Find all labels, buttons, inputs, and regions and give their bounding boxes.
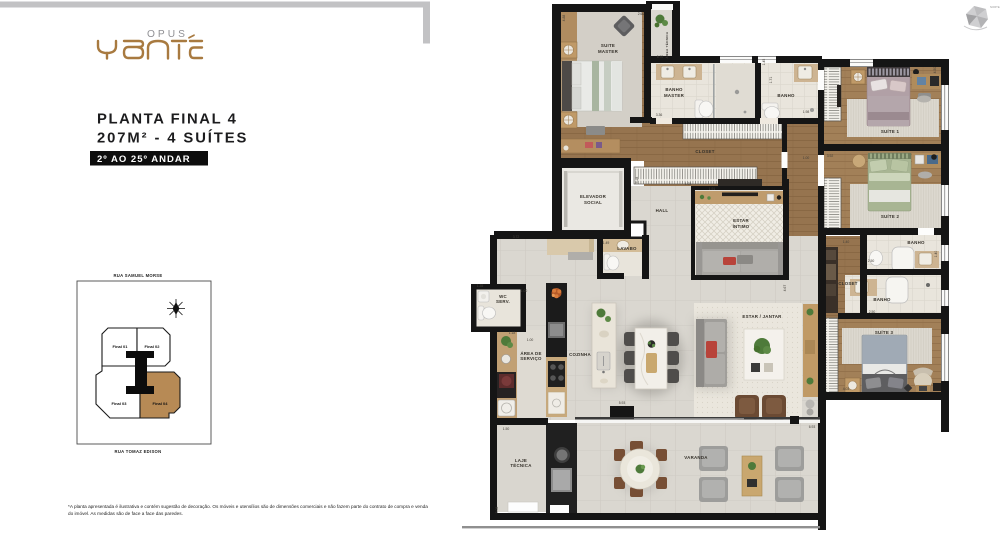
svg-text:do imóvel. As medidas são de f: do imóvel. As medidas são de face a face… [68, 511, 183, 516]
svg-text:SOCIAL: SOCIAL [584, 200, 602, 205]
svg-text:207M² - 4 SUÍTES: 207M² - 4 SUÍTES [97, 130, 248, 147]
svg-text:5.70: 5.70 [657, 55, 664, 59]
svg-text:1.40: 1.40 [843, 240, 850, 244]
svg-text:1.18: 1.18 [509, 331, 516, 335]
svg-text:1.35: 1.35 [477, 284, 484, 288]
svg-text:2.60: 2.60 [638, 12, 645, 16]
svg-text:HALL: HALL [656, 208, 669, 213]
svg-text:SUITE: SUITE [601, 43, 615, 48]
svg-text:3.92: 3.92 [827, 154, 834, 158]
svg-text:OPUS: OPUS [147, 29, 188, 40]
svg-text:Final 01: Final 01 [113, 344, 129, 349]
svg-text:LAVABO: LAVABO [617, 246, 637, 251]
svg-text:MASTER: MASTER [598, 49, 619, 54]
svg-text:ÍNTIMO: ÍNTIMO [733, 224, 750, 229]
svg-text:1.00: 1.00 [527, 338, 534, 342]
svg-text:4.03: 4.03 [843, 387, 850, 391]
svg-text:5.28: 5.28 [635, 177, 639, 184]
svg-text:NORTE: NORTE [990, 5, 1000, 9]
svg-text:Final 02: Final 02 [145, 344, 161, 349]
svg-text:ESTAR: ESTAR [733, 218, 749, 223]
svg-text:SUÍTE 1: SUÍTE 1 [881, 129, 900, 134]
svg-text:CLOSET: CLOSET [695, 149, 714, 154]
svg-text:Final 03: Final 03 [112, 401, 128, 406]
svg-text:3.08: 3.08 [495, 507, 499, 514]
svg-text:PLANTA FINAL 4: PLANTA FINAL 4 [97, 112, 238, 128]
svg-text:2.50: 2.50 [868, 259, 875, 263]
svg-text:2º AO 25º ANDAR: 2º AO 25º ANDAR [97, 154, 191, 165]
svg-text:2.50: 2.50 [869, 310, 876, 314]
svg-text:SERV.: SERV. [496, 299, 510, 304]
svg-text:3.72: 3.72 [513, 235, 520, 239]
svg-text:1.71: 1.71 [769, 77, 773, 84]
svg-text:TÉCNICA: TÉCNICA [510, 463, 532, 468]
svg-text:1.49: 1.49 [603, 241, 610, 245]
svg-text:SERVIÇO: SERVIÇO [520, 356, 542, 361]
svg-text:SUÍTE 3: SUÍTE 3 [875, 330, 894, 335]
svg-text:3.36: 3.36 [656, 113, 663, 117]
svg-text:COZINHA: COZINHA [569, 352, 591, 357]
svg-text:BANHO: BANHO [907, 240, 925, 245]
svg-text:1.91: 1.91 [709, 187, 716, 191]
svg-text:MASTER: MASTER [664, 93, 685, 98]
svg-text:1.45: 1.45 [762, 59, 766, 66]
svg-text:BANHO: BANHO [777, 93, 795, 98]
svg-text:4.88: 4.88 [562, 15, 566, 22]
svg-text:1.00: 1.00 [521, 289, 528, 293]
svg-text:Final 04: Final 04 [153, 401, 169, 406]
svg-text:1.50: 1.50 [503, 427, 510, 431]
svg-text:CLOSET: CLOSET [838, 281, 857, 286]
svg-text:5.93: 5.93 [619, 401, 626, 405]
svg-text:BANHO: BANHO [665, 87, 683, 92]
svg-text:SUÍTE 2: SUÍTE 2 [881, 214, 900, 219]
svg-text:4.67: 4.67 [783, 285, 787, 292]
svg-text:ÁREA TÉCNICA: ÁREA TÉCNICA [664, 31, 669, 58]
svg-text:*A planta apresentada é ilustr: *A planta apresentada é ilustrativa e co… [68, 504, 428, 509]
svg-text:6.93: 6.93 [809, 425, 816, 429]
svg-text:1.40: 1.40 [934, 251, 938, 258]
svg-text:ELEVADOR: ELEVADOR [580, 194, 607, 199]
svg-text:1.98: 1.98 [803, 110, 810, 114]
svg-text:1.00: 1.00 [803, 156, 810, 160]
svg-text:RUA TOMAZ EDISON: RUA TOMAZ EDISON [115, 449, 162, 454]
svg-text:VARANDA: VARANDA [684, 455, 708, 460]
svg-text:4.50: 4.50 [933, 67, 937, 74]
svg-text:BANHO: BANHO [873, 297, 891, 302]
svg-text:ESTAR / JANTAR: ESTAR / JANTAR [742, 314, 782, 319]
svg-text:1.93: 1.93 [685, 182, 692, 186]
svg-text:RUA SAMUEL MORSE: RUA SAMUEL MORSE [113, 273, 162, 278]
